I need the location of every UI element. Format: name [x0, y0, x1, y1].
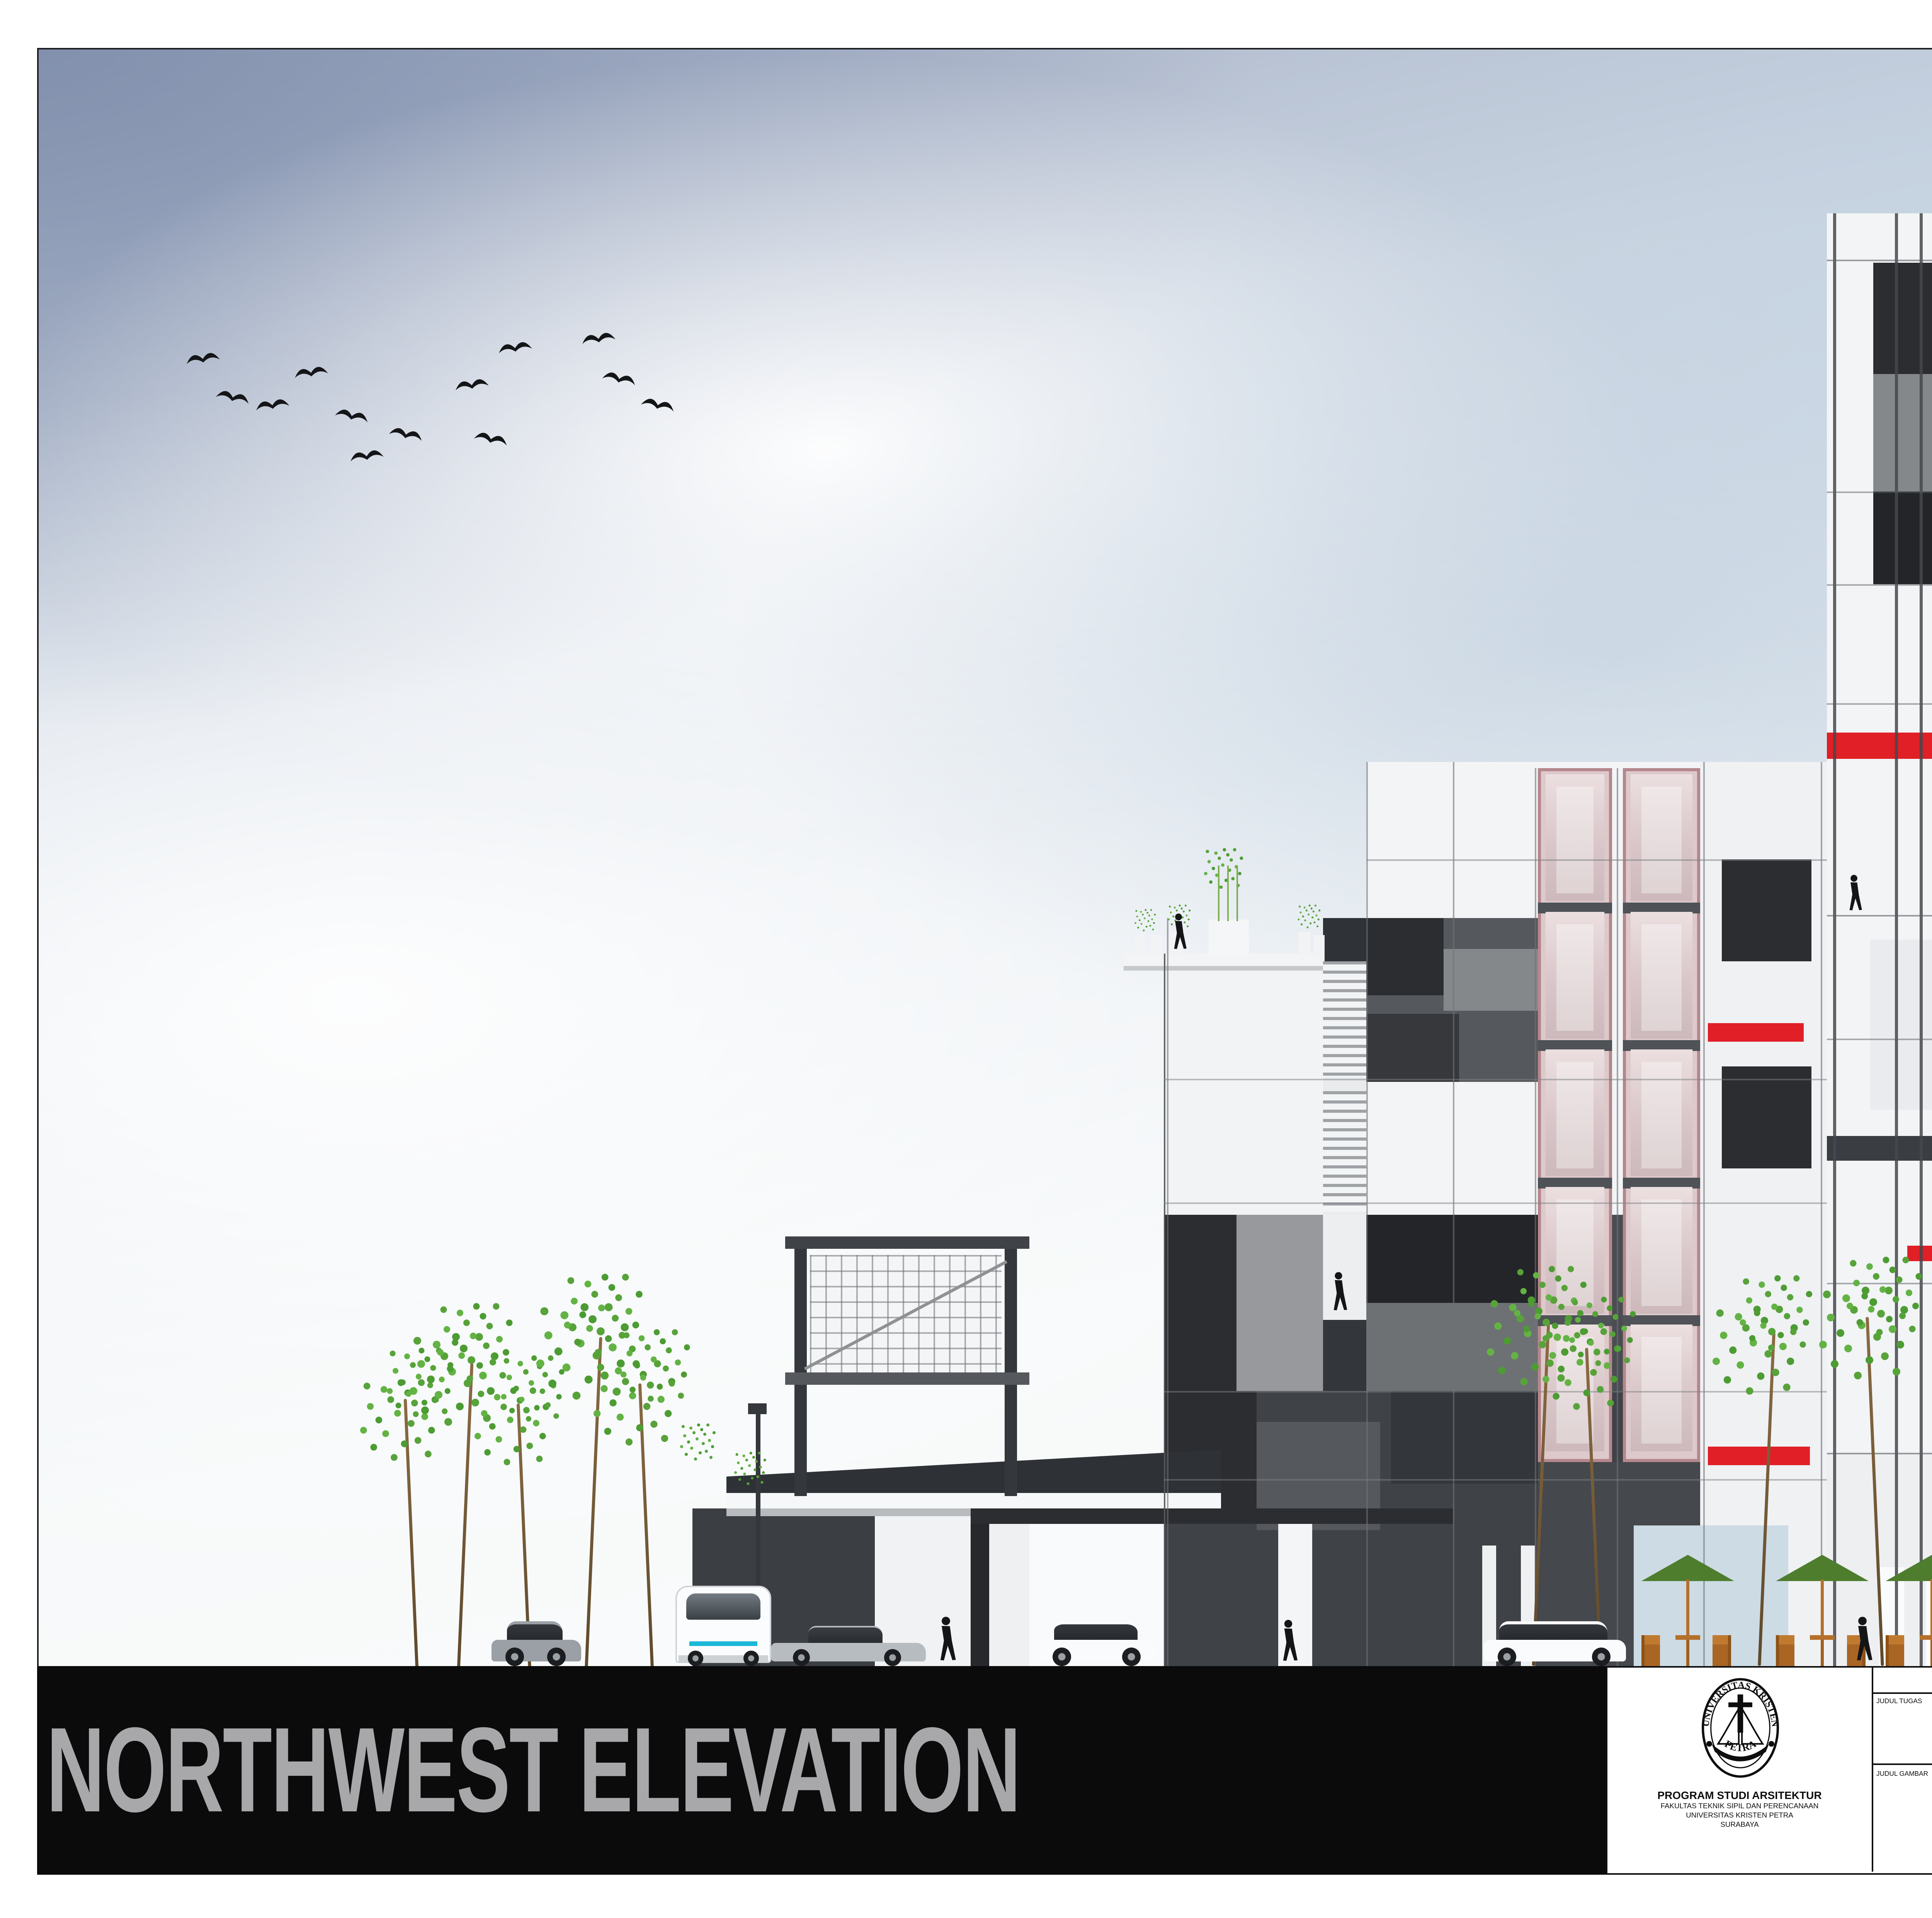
facade-panel	[785, 1236, 1029, 1249]
vehicle-bus	[675, 1586, 771, 1666]
bus-wheel	[743, 1651, 759, 1666]
tree-foliage	[1854, 1372, 1862, 1379]
facade-panel	[1722, 859, 1811, 961]
car-wheel	[793, 1649, 810, 1666]
judul-tugas-label: JUDUL TUGAS	[1876, 1697, 1922, 1705]
car-wheel	[1122, 1648, 1141, 1666]
person-silhouette	[1328, 1272, 1349, 1315]
cafe-table-leg	[1686, 1640, 1689, 1666]
bird-icon	[581, 323, 615, 351]
facade-panel	[1366, 1014, 1459, 1082]
shrub-foliage	[747, 1482, 749, 1485]
tree-foliage	[444, 1418, 452, 1426]
facade-panel	[1391, 1391, 1546, 1484]
floor-line	[1164, 1479, 1827, 1481]
facade-mullion	[1535, 768, 1536, 1666]
floor-line	[1827, 260, 1932, 261]
facade-panel	[1444, 949, 1546, 1011]
shaft-window	[1631, 1049, 1692, 1176]
floor-line	[1827, 1453, 1932, 1454]
drawing-sheet: NORTHWEST ELEVATION UNIVERSITAS KRISTEN …	[0, 0, 1932, 1918]
car-wheel	[1592, 1648, 1611, 1666]
shaft-window	[1546, 1049, 1604, 1176]
floor-line	[1164, 1391, 1827, 1393]
person-silhouette	[934, 1617, 958, 1666]
tree-foliage	[648, 1396, 654, 1402]
floor-line	[1827, 915, 1932, 916]
shrub-foliage	[1143, 930, 1145, 932]
shrub-foliage	[1306, 926, 1308, 928]
facade-panel	[1366, 1215, 1546, 1303]
facade-panel	[1124, 966, 1325, 971]
svg-text:PETRA: PETRA	[1722, 1738, 1757, 1753]
floor-line	[1827, 491, 1932, 493]
facade-panel	[1366, 918, 1444, 995]
cafe-chair	[1713, 1635, 1731, 1666]
cafe-table	[1920, 1635, 1932, 1640]
facade-mullion	[1617, 768, 1618, 1666]
project-title-line2: PROFESIONAL GAMER E-SPORTS MOBA DI JAKAR…	[1873, 1737, 1932, 1748]
bird-icon	[389, 419, 423, 447]
bus-wheel	[688, 1651, 703, 1666]
shaft-window	[1546, 774, 1604, 901]
shaft-window	[1631, 1325, 1692, 1451]
tree-foliage	[391, 1454, 398, 1461]
facade-panel	[1827, 1136, 1932, 1161]
bird-icon	[603, 363, 637, 391]
facade-panel	[1164, 954, 1323, 1215]
elevation-scene	[0, 0, 1932, 1918]
person-silhouette	[1276, 1620, 1299, 1666]
facade-panel	[1323, 1320, 1366, 1391]
floor-line	[1164, 1079, 1827, 1080]
vehicle-sedan	[771, 1620, 926, 1666]
shaft-window	[1546, 1187, 1604, 1314]
facade-mullion	[1833, 213, 1835, 1666]
facade-mullion	[1167, 918, 1168, 1666]
vehicle-suv	[492, 1620, 581, 1666]
louver-strip	[1323, 961, 1366, 1077]
facade-mullion	[1366, 762, 1368, 1666]
university-logo: UNIVERSITAS KRISTEN PETRA	[1699, 1677, 1780, 1779]
tree-foliage	[1768, 1345, 1774, 1351]
bird-icon	[641, 389, 675, 417]
elevation-title: NORTHWEST ELEVATION	[46, 1700, 1020, 1841]
bird-icon	[216, 382, 250, 410]
title-banner: NORTHWEST ELEVATION	[37, 1666, 1606, 1875]
tree-trunk	[585, 1337, 603, 1669]
facade-mullion	[1703, 762, 1705, 1666]
shaft-window	[1546, 912, 1604, 1039]
facade-panel	[748, 1403, 767, 1414]
facade-mullion	[1164, 954, 1166, 1666]
umbrella-canopy	[1641, 1555, 1734, 1581]
facade-panel	[1298, 932, 1311, 955]
bus-windshield	[686, 1593, 760, 1620]
university-name: UNIVERSITAS KRISTEN PETRA	[1607, 1811, 1872, 1820]
tree-foliage	[1595, 1360, 1601, 1366]
facade-panel	[1873, 491, 1932, 584]
judul-tugas-cell: JUDUL TUGAS SARANA PELATIHAN DAN ASRAMA …	[1873, 1695, 1932, 1765]
facade-panel	[1873, 374, 1932, 491]
car-wheel	[547, 1648, 566, 1666]
bird-icon	[335, 400, 369, 428]
facade-panel	[1708, 1447, 1810, 1465]
bird-icon	[185, 343, 219, 371]
shaft-window	[1546, 1325, 1604, 1451]
judul-gambar-cell: JUDUL GAMBAR TAMPAK	[1873, 1767, 1932, 1871]
tree-foliage	[1746, 1387, 1753, 1394]
tree-foliage	[626, 1438, 633, 1445]
floor-line	[1164, 1202, 1827, 1204]
tree-foliage	[467, 1376, 473, 1382]
shaft-window	[1631, 1187, 1692, 1314]
vehicle-suv	[1039, 1620, 1156, 1666]
facade-panel	[1124, 954, 1325, 966]
floor-line	[1827, 584, 1932, 586]
car-wheel	[884, 1649, 901, 1666]
car-wheel	[1053, 1648, 1071, 1666]
cafe-table-leg	[1821, 1640, 1824, 1666]
facade-panel	[971, 1508, 989, 1666]
tree-foliage	[504, 1459, 510, 1466]
bird-icon	[498, 332, 532, 360]
facade-panel	[1164, 1215, 1236, 1391]
facade-panel	[1134, 935, 1145, 955]
facade-panel	[1708, 1023, 1804, 1042]
bird-icon	[255, 389, 289, 417]
cafe-table	[1675, 1635, 1700, 1640]
facade-panel	[1722, 1066, 1811, 1168]
facade-panel	[785, 1372, 1029, 1385]
car-body	[492, 1640, 581, 1661]
facade-panel	[1323, 918, 1366, 961]
cafe-chair	[1641, 1635, 1660, 1666]
tree-foliage	[1543, 1335, 1549, 1342]
car-wheel	[505, 1648, 524, 1666]
facade-panel	[1314, 935, 1325, 955]
facade-panel	[1873, 263, 1932, 374]
facade-panel	[971, 1508, 1453, 1524]
bird-icon	[349, 440, 383, 468]
bamboo-stalk	[1236, 865, 1238, 921]
pink-glass-shaft	[1538, 768, 1612, 1462]
facade-panel	[989, 1508, 1029, 1666]
title-block: UNIVERSITAS KRISTEN PETRA PROGRAM STUDI …	[1606, 1666, 1932, 1875]
facade-panel	[1870, 940, 1932, 1110]
facade-panel	[1366, 1303, 1546, 1391]
shaft-window	[1631, 912, 1692, 1039]
floor-line	[1827, 1283, 1932, 1284]
bamboo-stalk	[1218, 865, 1220, 921]
project-title-line1: SARANA PELATIHAN DAN ASRAMA UNTUK	[1873, 1717, 1932, 1728]
car-wheel	[1498, 1648, 1516, 1666]
facade-panel	[1151, 935, 1162, 955]
institution-cell: UNIVERSITAS KRISTEN PETRA PROGRAM STUDI …	[1607, 1668, 1873, 1871]
floor-line	[1366, 859, 1827, 861]
person-silhouette	[1850, 1617, 1875, 1666]
person-silhouette	[1843, 875, 1863, 915]
facade-mullion	[1453, 762, 1454, 1666]
tree-foliage	[595, 1349, 602, 1356]
cafe-chair	[1776, 1635, 1794, 1666]
shrub-foliage	[1219, 886, 1223, 889]
person-silhouette	[1168, 913, 1188, 954]
tree-foliage	[1876, 1329, 1883, 1336]
cafe-chair	[1886, 1635, 1904, 1666]
facade-mullion	[1920, 213, 1922, 1666]
shrub-foliage	[694, 1457, 697, 1461]
city-name: SURABAYA	[1607, 1820, 1872, 1829]
judul-gambar-label: JUDUL GAMBAR	[1876, 1769, 1928, 1777]
drawing-title: TAMPAK	[1873, 1804, 1932, 1821]
tree-foliage	[1520, 1378, 1527, 1385]
facade-mullion	[1821, 762, 1822, 1666]
facade-mullion	[1895, 213, 1897, 1666]
program-name: PROGRAM STUDI ARSITEKTUR	[1607, 1791, 1872, 1802]
facade-panel	[1209, 920, 1249, 955]
tree-trunk	[404, 1399, 419, 1669]
tree-foliage	[1573, 1403, 1580, 1410]
tree-trunk	[457, 1363, 474, 1669]
tree-foliage	[413, 1411, 419, 1417]
vehicle-suv	[1484, 1620, 1626, 1666]
bird-icon	[474, 423, 509, 451]
bus-stripe	[689, 1641, 757, 1646]
tree-trunk	[638, 1383, 655, 1669]
cafe-table-leg	[1930, 1640, 1932, 1666]
cafe-table	[1810, 1635, 1835, 1640]
faculty-name: FAKULTAS TEKNIK SIPIL DAN PERENCANAAN	[1607, 1802, 1872, 1811]
floor-line	[1827, 1039, 1932, 1040]
bird-icon	[454, 369, 488, 397]
pink-glass-shaft	[1623, 768, 1700, 1462]
umbrella-canopy	[1776, 1555, 1869, 1581]
louver-strip	[1323, 1091, 1366, 1212]
facade-panel	[1236, 1215, 1323, 1391]
facade-panel	[1827, 733, 1932, 759]
tree-foliage	[573, 1392, 581, 1400]
bird-icon	[294, 357, 328, 385]
floor-line	[1827, 703, 1932, 705]
bamboo-stalk	[1227, 865, 1229, 921]
tree-foliage	[526, 1416, 531, 1421]
project-header-cell: TUGAS AKHIR - SEMESTER GENAP 2015/2016	[1873, 1668, 1932, 1693]
umbrella-canopy	[1886, 1555, 1932, 1581]
shaft-window	[1631, 774, 1692, 901]
